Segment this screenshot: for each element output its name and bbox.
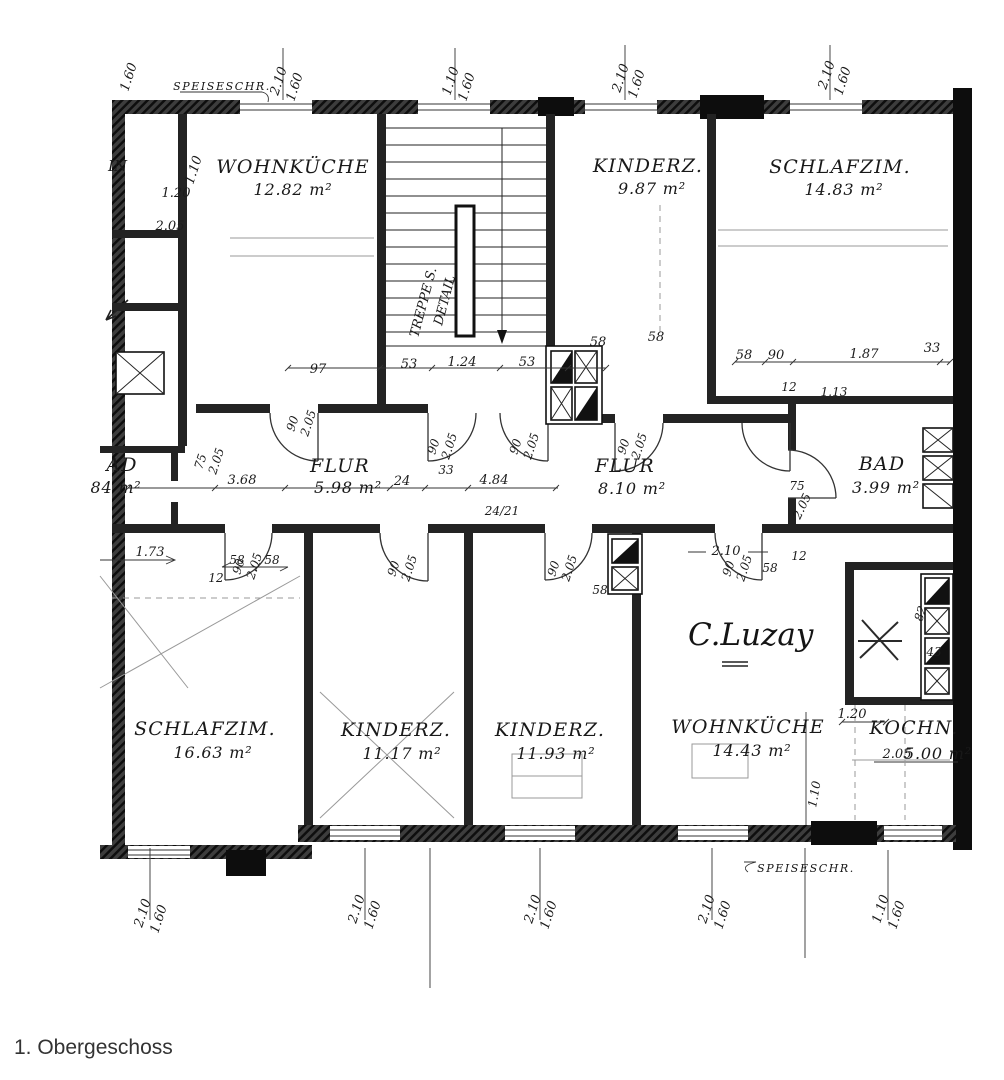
dim-label: 58 [648,330,665,345]
dim-label: 75 [789,479,804,493]
door-swing [742,423,790,471]
room-label-wohnkueche-top: WOHNKÜCHE [216,155,370,178]
dim-label: 2.05 [558,553,580,584]
dim-label: 58 [736,348,753,363]
dim-label: 3.68 [228,473,257,488]
window-opening [240,100,312,114]
dim-label: 2.05 [243,551,265,582]
dim-label: 58 [762,561,778,575]
dim-label: 58 [264,553,280,567]
window-opening [505,826,575,840]
dim-label: 53 [519,355,536,370]
signature: C.Luzay [688,617,814,653]
dim-label: 1.10 [805,779,823,808]
chimney-block [811,821,877,845]
dim-label: 2.05 [155,219,185,234]
floor-plan-canvas: WOHNKÜCHE 12.82 m² KINDERZ. 9.87 m² SCHL… [0,0,1004,1080]
dim-label: 12 [781,380,796,394]
dim-label: 1.87 [850,347,880,362]
stair-note-line1: TREPPE S. [407,266,440,339]
floor-plan-page: WOHNKÜCHE 12.82 m² KINDERZ. 9.87 m² SCHL… [0,0,1004,1080]
room-label-flur-right: FLUR [594,455,655,477]
dim-label: 1.60 [118,61,141,93]
room-area: 11.93 m² [517,744,596,763]
room-label-schlafzim-bottom: SCHLAFZIM. [134,718,276,740]
dim-label: 12 [791,549,806,563]
room-area: 16.63 m² [174,743,253,762]
left-edge-fragment: IN [107,157,128,175]
room-label-schlafzim-top: SCHLAFZIM. [769,156,911,178]
dim-label: 24 [393,474,411,489]
dim-label: 1.20 [162,186,191,201]
room-area: 5.00 m² [904,744,972,763]
pantry-label-top: SPEISESCHR. [173,80,271,93]
room-label-kinderz-top: KINDERZ. [592,155,703,177]
room-label-kinderz-bottom-1: KINDERZ. [340,719,451,741]
room-area: 5.98 m² [314,478,382,497]
dim-label: 58 [590,335,607,350]
room-area: 12.82 m² [254,180,333,199]
measurement-labels: 97 53 1.24 53 58 58 58 90 1.87 33 12 1.1… [136,154,942,808]
room-label-bad-left-cut: AD [104,454,137,476]
stair-stringer [456,206,474,336]
page-title: 1. Obergeschoss [14,1036,173,1060]
dim-label: 1.13 [821,385,848,399]
dim-label: 33 [924,341,941,356]
room-area: 14.43 m² [713,741,792,760]
dim-label: 2.05 [790,491,814,522]
dim-label: 24/21 [484,504,520,518]
dim-label: 97 [310,362,327,377]
signature-underline [722,662,748,666]
room-label-wohnkueche-bottom: WOHNKÜCHE [671,715,825,738]
dim-label: 90 [768,348,785,363]
room-label-kochnische: KOCHN. [868,717,958,739]
room-area: 8.10 m² [598,479,666,498]
dim-label: 1.20 [838,707,867,722]
dim-label: 1.73 [136,545,165,560]
window-opening [884,826,942,840]
room-label-flur-left: FLUR [309,455,370,477]
dim-label: 1.24 [448,355,477,370]
dim-label: 2.05 [297,408,319,439]
window-opening [330,826,400,840]
dim-label: 4.84 [479,473,509,488]
room-area: 14.83 m² [805,180,884,199]
stair-direction-arrow [497,330,507,344]
room-area: 9.87 m² [618,179,686,198]
dim-label: 58 [592,583,608,597]
window-opening [418,100,490,114]
dim-label: 2.05 [520,431,542,462]
room-area: 84 m² [90,478,141,497]
window-opening [678,826,748,840]
room-label-kinderz-bottom-2: KINDERZ. [494,719,605,741]
chimney-block [226,850,266,876]
dim-label: 53 [401,357,418,372]
dim-label: 2.10 [711,544,741,559]
room-label-bad-right: BAD [858,453,906,475]
cross-mark [858,620,902,660]
pantry-label-bottom: SPEISESCHR. [757,862,855,875]
window-opening [128,846,190,858]
dim-label: 58 [229,553,245,567]
dim-label: 33 [438,463,454,477]
chimney-block [538,97,574,116]
dim-label: 12 [208,571,223,585]
room-area: 3.99 m² [852,478,920,497]
dim-label: 2.05 [438,431,460,462]
dim-label: 2.05 [882,747,912,762]
window-opening [585,100,657,114]
dim-label: 43 [925,645,942,659]
window-opening [790,100,862,114]
staircase [386,128,546,346]
room-area: 11.17 m² [363,744,442,763]
window-dims-bottom: 2.101.60 2.101.60 2.101.60 2.101.60 1.10… [131,893,909,935]
dim-label: 2.05 [205,446,227,477]
